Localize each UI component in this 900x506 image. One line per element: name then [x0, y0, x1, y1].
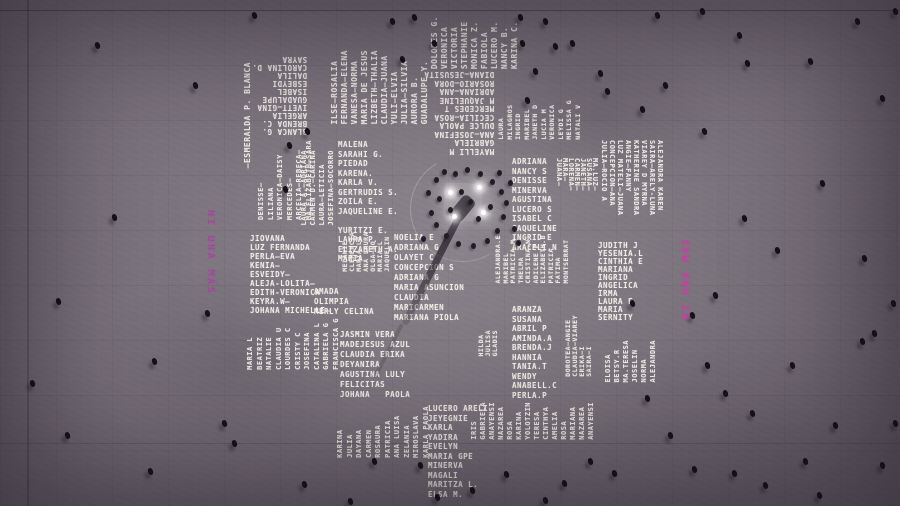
- painted-name: ARANZA: [512, 305, 557, 315]
- painted-name: CRISTY C: [294, 318, 304, 370]
- pedestrian: [611, 469, 618, 477]
- painted-name: NATALIE: [265, 318, 275, 370]
- pedestrian: [639, 105, 646, 113]
- painted-name: MERCEDES—: [286, 140, 296, 220]
- pedestrian: [662, 81, 669, 89]
- pedestrian: [892, 419, 899, 427]
- gathered-person: [497, 170, 502, 176]
- painted-name: VICTORIA: [450, 16, 460, 69]
- gathered-person: [512, 226, 517, 232]
- painted-name: ELOISA: [604, 340, 613, 382]
- painted-names-bottom-columns: KARINAJULIADAYANACARMENROSAURAPATRICIAAN…: [336, 406, 431, 458]
- painted-name: SUSANA: [512, 315, 557, 325]
- pedestrian: [111, 213, 118, 221]
- painted-name: MINERVA: [512, 186, 557, 196]
- pedestrian: [722, 389, 729, 397]
- painted-name: LUCIA M: [540, 100, 549, 140]
- pedestrian: [411, 13, 418, 21]
- painted-name: NANCY S: [512, 167, 557, 177]
- painted-name: CONCEPCION—ANA: [608, 140, 616, 215]
- painted-name: MARIA ASUNCION: [394, 283, 464, 293]
- painted-name: LAURA A.—ADRIANA: [300, 150, 309, 225]
- pedestrian: [762, 481, 769, 489]
- painted-name: VIAREY D MYRNA: [640, 140, 648, 215]
- painted-name: JAQUELIN: [384, 232, 391, 272]
- pedestrian: [871, 329, 878, 337]
- painted-names-gladis-columns: HILDAJULISAGLADIS: [478, 330, 499, 356]
- pedestrian: [519, 39, 526, 47]
- painted-name: JAQUELINE E.: [338, 207, 398, 217]
- painted-name: —ESMERALDA P. BLANCA: [242, 62, 253, 168]
- painted-names-top-columns-left: ILSE—ROSALIAFERNANDA—ELENAVANESA—NORMAMA…: [330, 50, 430, 124]
- pedestrian: [347, 497, 354, 505]
- pedestrian: [892, 7, 899, 15]
- painted-name: MERCEDES T: [424, 104, 494, 113]
- painted-names-amada-rows: AMADAOLIMPIAMERLY CELINA: [314, 287, 374, 317]
- painted-name: DALILA: [252, 71, 307, 79]
- painted-name: SAYRA: [252, 55, 307, 63]
- gathered-person: [448, 207, 453, 213]
- painted-names-right-columns-short: MA.LUZ—SUSANA—JANETH—CARMEN—LORENA—MARA—…: [556, 158, 598, 191]
- pedestrian: [789, 361, 796, 369]
- painted-name: ARGELIA: [252, 111, 307, 119]
- painted-name: ZOILA E.: [338, 197, 398, 207]
- gathered-person: [478, 171, 483, 177]
- painted-name: MAGALI: [428, 471, 488, 481]
- painted-name: TERESA: [533, 402, 542, 440]
- painted-name: LILIANA: [267, 140, 277, 220]
- gathered-person: [434, 177, 439, 183]
- gathered-person: [485, 238, 490, 244]
- pedestrian: [701, 127, 708, 135]
- painted-name: MELISSA G: [565, 100, 574, 140]
- pedestrian: [561, 479, 568, 487]
- aerial-photo-plaza-memorial: BLANCA G.BRENDA C.ARGELIAIVETT—GINAGUADA…: [0, 0, 900, 506]
- painted-name: GUADALUPE: [252, 95, 307, 103]
- painted-names-top-left-inverted: BLANCA G.BRENDA C.ARGELIAIVETT—GINAGUADA…: [252, 55, 307, 135]
- painted-name: WENDY: [512, 372, 557, 382]
- painted-name: DULCE PAOLA: [424, 121, 494, 130]
- painted-name: LUZ FERNANDA: [250, 243, 330, 252]
- painted-name: ROSA: [506, 402, 515, 440]
- pedestrian: [569, 39, 576, 47]
- gathered-person: [508, 180, 513, 186]
- painted-names-top-columns-mid: DOLORES G.VERONICAVICTORIASTEPHANIEMONIC…: [430, 16, 520, 69]
- painted-name: ABRIL P: [512, 324, 557, 334]
- painted-names-center-columns: LAURAMILAGROSINGRIDMARIBELJANETH DLUCIA …: [497, 100, 582, 140]
- gathered-person: [476, 216, 481, 222]
- painted-name: DENISSE: [512, 176, 557, 186]
- pedestrian: [532, 67, 539, 75]
- painted-name: GLADIS: [492, 330, 499, 356]
- painted-name: PERLA.P: [512, 391, 557, 401]
- painted-name: MARIA GPE: [428, 452, 488, 462]
- painted-name: ANA LUISA: [393, 406, 403, 458]
- gathered-person: [442, 169, 447, 175]
- painted-name: BLANCA G.: [252, 127, 307, 135]
- pedestrian: [744, 59, 751, 67]
- painted-name: ANAYENSI: [488, 402, 497, 440]
- painted-name: SERNITY: [598, 314, 643, 322]
- painted-name: JUANA—: [556, 158, 562, 191]
- pedestrian: [204, 309, 211, 317]
- pedestrian: [417, 461, 424, 469]
- painted-name: MADEJESUS AZUL: [340, 340, 410, 350]
- pedestrian: [251, 11, 258, 19]
- painted-name: NAZAREA: [497, 402, 506, 440]
- painted-name: BRENDA.J: [512, 343, 557, 353]
- floodlight: [481, 210, 486, 215]
- gathered-person: [504, 200, 509, 206]
- painted-name: BETSY.R: [613, 340, 622, 382]
- painted-name: KARINA: [336, 406, 346, 458]
- painted-name: PIEDAD: [338, 159, 398, 169]
- painted-name: ANAYENSI: [587, 402, 596, 440]
- pedestrian: [859, 337, 866, 345]
- painted-name: MONICA Z.: [470, 16, 480, 69]
- painted-name: MINERVA: [428, 461, 488, 471]
- painted-name: LUCERO M.: [490, 16, 500, 69]
- painted-name: ESVEIDY—: [250, 270, 330, 279]
- painted-name: CLAUDIA—JUANA: [380, 50, 390, 124]
- pedestrian: [301, 480, 308, 488]
- painted-name: ISABEL: [252, 87, 307, 95]
- painted-name: ANABELL.C: [512, 381, 557, 391]
- pedestrian: [151, 357, 158, 365]
- gathered-person: [444, 233, 449, 239]
- painted-name: NANCY B.: [500, 16, 510, 69]
- painted-name: MAYELLI M: [424, 147, 494, 156]
- painted-name: ESBEYDI: [252, 79, 307, 87]
- painted-name: CECILIA—ROSA: [424, 113, 494, 122]
- gathered-person: [499, 189, 504, 195]
- painted-name: FABIOLA: [480, 16, 490, 69]
- painted-name: VERONICA: [548, 100, 557, 140]
- gathered-person: [516, 240, 521, 246]
- painted-names-right-columns: ALEJANDRA KARENSAIRA—ARELY-LUNAVIAREY D …: [600, 140, 664, 215]
- painted-names-left-columns-2: LAURA A.—ADRIANACARMEN D.—CARINALAURA—LE…: [300, 150, 336, 225]
- painted-name: JIOVANA: [250, 234, 330, 243]
- painted-name: KARINA C.: [510, 16, 520, 69]
- pedestrian: [816, 491, 823, 499]
- pedestrian: [741, 214, 748, 222]
- painted-name: EVELYN: [428, 442, 488, 452]
- painted-name: DENISSE—: [257, 140, 267, 220]
- painted-name: MONTSERRAT: [563, 235, 571, 284]
- painted-name: INGRID: [514, 100, 523, 140]
- pedestrian: [802, 457, 809, 465]
- painted-name: KATHERINE SANDRA: [632, 140, 640, 215]
- pedestrian: [503, 470, 510, 478]
- painted-names-bottom-right-columns: IRISGABRIELAANAYENSINAZAREAROSAKARINAYOL…: [470, 402, 596, 440]
- painted-name: LAURA: [497, 100, 506, 140]
- painted-name: DEYANIRA: [340, 360, 410, 370]
- painted-name: MARIANA: [569, 402, 578, 440]
- pedestrian: [192, 81, 199, 89]
- pedestrian: [231, 439, 238, 447]
- painted-name: LOURDES C: [284, 318, 294, 370]
- gathered-person: [501, 214, 506, 220]
- painted-name: DAYANA: [355, 406, 365, 458]
- painted-name: FELICITAS: [340, 380, 410, 390]
- pedestrian: [221, 419, 228, 427]
- painted-name: MARICARMEN: [394, 303, 464, 313]
- painted-name: NAZAREA: [578, 402, 587, 440]
- pedestrian: [604, 87, 611, 95]
- painted-name: JOSEFINA: [303, 318, 313, 370]
- floodlight: [477, 185, 482, 190]
- painted-name: LEYDI G: [557, 100, 566, 140]
- painted-name: MARIA DE JESUS: [360, 50, 370, 124]
- painted-name: MERLY CELINA: [314, 307, 374, 317]
- painted-name: ANGIE—FANNY: [624, 140, 632, 215]
- painted-name: CLAUDIA U: [275, 318, 285, 370]
- gathered-person: [456, 241, 461, 247]
- painted-name: MA.TERESA: [622, 340, 631, 382]
- painted-name: ROSAURA: [374, 406, 384, 458]
- pedestrian: [667, 431, 674, 439]
- gathered-person: [429, 210, 434, 216]
- painted-name: DIANA—JESUSITA: [424, 70, 494, 79]
- painted-name: ILSE—ROSALIA: [330, 50, 340, 124]
- painted-name: LUZ MATELI—JUANA: [616, 140, 624, 215]
- painted-name: SAIRA—I: [586, 315, 593, 377]
- painted-name: CLAUDIA: [394, 293, 464, 303]
- pavement-seam: [0, 10, 900, 11]
- painted-name: AURORA B.: [410, 50, 420, 124]
- painted-name: IVETT—GINA: [252, 103, 307, 111]
- painted-name: VERONICA—DAISY: [276, 140, 286, 220]
- gathered-person: [465, 167, 470, 173]
- painted-names-mid-rows: ARANZASUSANAABRIL PAMINDA.ABRENDA.JHANNI…: [512, 305, 557, 400]
- painted-name: VERONICA: [440, 16, 450, 69]
- pedestrian: [542, 17, 549, 25]
- painted-name: NATALI V: [574, 100, 583, 140]
- gathered-person: [437, 196, 442, 202]
- pedestrian: [644, 394, 651, 402]
- pedestrian: [654, 11, 661, 19]
- painted-name: GERTRUDIS S.: [338, 188, 398, 198]
- pink-slogan-left: NI UNA MÁS: [205, 210, 216, 295]
- gathered-person: [421, 236, 426, 242]
- painted-name: GABRIELA: [424, 138, 494, 147]
- painted-name: MARIA L: [246, 318, 256, 370]
- pedestrian: [854, 17, 861, 25]
- painted-name: ANA—JOSEFINA: [424, 130, 494, 139]
- painted-names-center-columns-2: ALEJANDRA.EMARIBELPATRICIA MTHELMACRISTI…: [495, 235, 570, 284]
- pedestrian: [29, 379, 36, 387]
- painted-name: BRENDA C.: [252, 119, 307, 127]
- painted-name: KENIA—: [250, 261, 330, 270]
- painted-name: MARITZA L.: [428, 480, 488, 490]
- pedestrian: [832, 421, 839, 429]
- gathered-person: [495, 228, 500, 234]
- pedestrian: [807, 57, 814, 65]
- pedestrian: [597, 69, 604, 77]
- painted-name: MALENA: [338, 140, 398, 150]
- painted-name: KARINA: [515, 402, 524, 440]
- painted-name: NORMA: [640, 340, 649, 382]
- floodlight: [452, 214, 457, 219]
- painted-name: CINTHYA: [542, 402, 551, 440]
- painted-name: KARLA V.: [338, 178, 398, 188]
- painted-name: KARENA.: [338, 169, 398, 179]
- painted-name: CARMEN D.—CARINA: [309, 150, 318, 225]
- pedestrian: [819, 179, 826, 187]
- pedestrian: [147, 467, 154, 475]
- painted-name: YOLOTZIN: [524, 402, 533, 440]
- painted-name: IRIS: [470, 402, 479, 440]
- pedestrian: [704, 361, 711, 369]
- gathered-person: [434, 222, 439, 228]
- pedestrian: [890, 299, 897, 307]
- floodlight: [448, 190, 453, 195]
- painted-names-left-edge-column: —ESMERALDA P. BLANCA: [242, 62, 253, 168]
- painted-name: ALEJANDRA: [649, 340, 658, 382]
- pedestrian: [94, 41, 101, 49]
- painted-name: CLAUDIA ERIKA: [340, 350, 410, 360]
- painted-names-right-lower-columns: ELOISABETSY.RMA.TERESAJOSELINNORMAALEJAN…: [604, 340, 658, 382]
- painted-name: LUCERO S: [512, 205, 557, 215]
- gathered-person: [426, 190, 431, 196]
- painted-names-center-inverted: MAYELLI MGABRIELAANA—JOSEFINADULCE PAOLA…: [424, 70, 494, 155]
- pedestrian: [774, 246, 781, 254]
- painted-name: CAROLINA D.: [252, 63, 307, 71]
- painted-name: JAQUELINE: [512, 224, 557, 234]
- painted-names-bottomleft-rows: JASMIN VERAMADEJESUS AZULCLAUDIA ERIKADE…: [340, 330, 410, 400]
- painted-name: SAIRA—ARELY-LUNA: [648, 140, 656, 215]
- painted-name: VANESA—NORMA: [350, 50, 360, 124]
- painted-name: ADRIANA—ANA: [424, 87, 494, 96]
- painted-name: ADRIANA: [512, 157, 557, 167]
- painted-names-right-mid-rows: JUDITH JYESENIA.LCINTHIA EMARIANAINGRIDA…: [598, 242, 643, 322]
- painted-name: AMINDA.A: [512, 334, 557, 344]
- painted-name: ISABEL C: [512, 214, 557, 224]
- painted-name: ROSA: [560, 402, 569, 440]
- gathered-person: [471, 243, 476, 249]
- painted-name: OLIMPIA: [314, 297, 374, 307]
- painted-name: TANIA.T: [512, 362, 557, 372]
- painted-name: JOSEFINA—SOCORRO: [327, 150, 336, 225]
- painted-name: AMELIA: [551, 402, 560, 440]
- pedestrian: [736, 31, 743, 39]
- gathered-person: [468, 199, 473, 205]
- painted-names-mid-columns-thin: DOROTEA—ANGIECLAUDIA—VIAREYERIKA—ISAIRA—…: [565, 315, 593, 377]
- painted-name: PERLA—EVA: [250, 252, 330, 261]
- painted-name: [338, 216, 398, 226]
- painted-name: JANETH D: [531, 100, 540, 140]
- painted-name: SARAHI G.: [338, 150, 398, 160]
- pavement-seam: [27, 0, 29, 506]
- painted-name: LAURA—LETICIA: [318, 150, 327, 225]
- pedestrian: [371, 457, 378, 465]
- painted-names-midleft-columns-thin: MELANIECLEMENCIAMARIA LOANA LAURAOLGA—NO…: [342, 232, 391, 272]
- painted-name: JOSELIN: [631, 340, 640, 382]
- pedestrian: [699, 7, 706, 15]
- painted-name: YULI—ELVIA: [390, 50, 400, 124]
- pedestrian: [879, 94, 886, 102]
- painted-name: MARIBEL: [523, 100, 532, 140]
- pedestrian: [64, 431, 71, 439]
- painted-names-left-bottom-columns: MARIA LBEATRIZNATALIECLAUDIA ULOURDES CC…: [246, 318, 341, 370]
- pedestrian: [712, 291, 719, 299]
- painted-name: MIROSLAVA: [412, 406, 422, 458]
- pedestrian: [731, 469, 738, 477]
- gathered-person: [490, 179, 495, 185]
- painted-name: BEATRIZ: [256, 318, 266, 370]
- painted-name: GABRIELA G: [322, 318, 332, 370]
- painted-name: AGUSTINA: [512, 195, 557, 205]
- painted-name: LIZBETH—THALIA: [370, 50, 380, 124]
- painted-name: JULIA: [346, 406, 356, 458]
- pedestrian: [691, 465, 698, 473]
- pedestrian: [861, 254, 868, 262]
- painted-name: JULIA—ROCIO A: [600, 140, 608, 215]
- painted-name: ROSARIO—DORA: [424, 79, 494, 88]
- painted-name: PATRICIA: [384, 406, 394, 458]
- pedestrian: [749, 409, 756, 417]
- painted-name: JOHANA PAOLA: [340, 390, 410, 400]
- pink-slogan-right: NI UNA MÁS: [681, 237, 692, 319]
- painted-name: ZELANIA: [403, 406, 413, 458]
- painted-name: CARMEN: [365, 406, 375, 458]
- pedestrian: [587, 457, 594, 465]
- gathered-person: [459, 189, 464, 195]
- painted-name: HANNIA: [512, 353, 557, 363]
- painted-name: GABRIELA: [479, 402, 488, 440]
- painted-name: STEPHANIE: [460, 16, 470, 69]
- pedestrian: [879, 461, 886, 469]
- painted-name: AMADA: [314, 287, 374, 297]
- pedestrian: [552, 42, 559, 50]
- painted-name: FERNANDA—ELENA: [340, 50, 350, 124]
- gathered-person: [453, 171, 458, 177]
- painted-name: M JAQUELINE: [424, 96, 494, 105]
- painted-name: ALEJANDRA KAREN: [656, 140, 664, 215]
- pedestrian: [389, 17, 396, 25]
- painted-name: MILAGROS: [506, 100, 515, 140]
- pedestrian: [55, 297, 62, 305]
- gathered-person: [488, 204, 493, 210]
- painted-name: CATALINA L: [313, 318, 323, 370]
- pedestrian: [542, 496, 549, 504]
